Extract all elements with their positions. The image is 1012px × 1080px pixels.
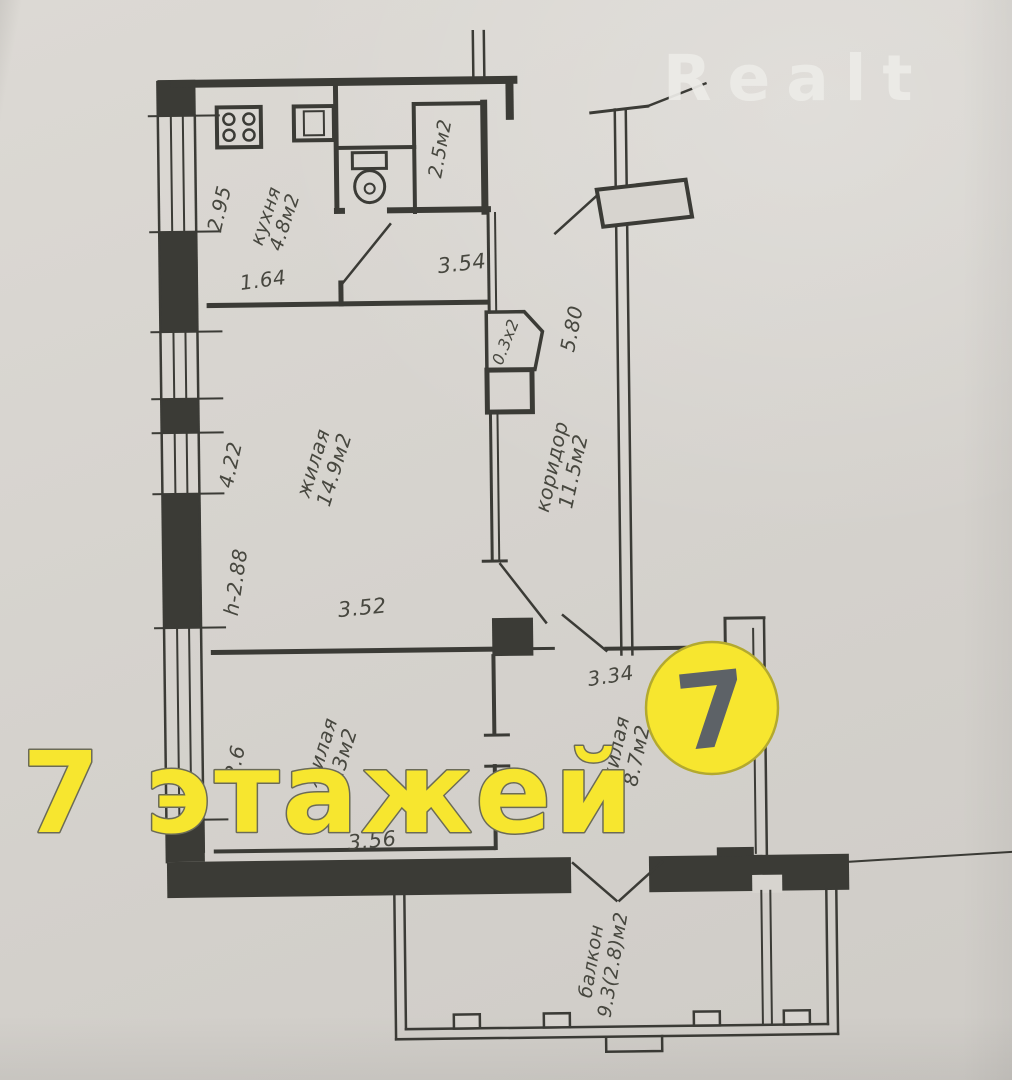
dim-kitchen-width: 2.95 (202, 183, 236, 234)
wall-living3-notch (725, 618, 764, 647)
balcony-divider (761, 891, 772, 1025)
kitchen-door-leaf (342, 224, 391, 283)
bathroom-area: 2.5м2 (424, 117, 456, 179)
balcony-right (826, 890, 838, 1034)
wall-living1-bottom (213, 649, 492, 652)
sink-icon (294, 106, 334, 140)
floors-watermark: 7 этажей (22, 729, 636, 859)
floors-watermark-text: 7 этажей (22, 729, 636, 859)
balcony-door-gap (752, 875, 782, 893)
balcony-center-step (606, 1036, 662, 1052)
dim-hall-width: 3.54 (436, 249, 487, 279)
wall-living1-top (209, 302, 486, 305)
living1-label: жилая 14.9м2 (290, 423, 356, 509)
scanned-floor-plan-photo: 2.95 кухня 4.8м2 2.5м2 1.64 3.54 5.80 0.… (0, 0, 1012, 1080)
living3-door-leaf (563, 615, 606, 652)
wall-wc-bottom (337, 209, 488, 211)
floor-plan-image: 2.95 кухня 4.8м2 2.5м2 1.64 3.54 5.80 0.… (0, 0, 1012, 1080)
living1-door-leaf (500, 563, 546, 623)
wall-corridor-left-a (488, 213, 489, 312)
wall-corridor-left-c (490, 412, 492, 560)
vent-lines (473, 31, 485, 78)
wall-corridor-left-b (495, 213, 496, 312)
dim-shaft: 0.3х2 (488, 316, 523, 367)
corridor-label: коридор 11.5м2 (530, 419, 595, 519)
dim-living1-width: 3.52 (337, 593, 388, 622)
walls (148, 25, 1012, 1057)
dim-living3-width: 3.34 (586, 660, 636, 691)
agency-logo: 7 (646, 642, 778, 775)
entry-door (597, 180, 693, 227)
toilet-icon (352, 152, 387, 202)
balcony-french-door-leaves (573, 862, 662, 901)
dim-living1-depth: 4.22 (214, 439, 247, 490)
stove-icon (217, 107, 261, 148)
shaft-box (487, 370, 533, 413)
wall-bath-right (484, 103, 485, 211)
balcony-label: балкон 9.3(2.8)м2 (572, 907, 633, 1019)
window-glazing-lines (171, 116, 192, 820)
brand-watermark: Realt (663, 42, 928, 115)
entry-door-leaf (555, 195, 598, 234)
dim-kitchen-door: 1.64 (238, 265, 287, 295)
wall-top (174, 80, 513, 84)
balcony-left (394, 895, 406, 1039)
logo-digit: 7 (670, 647, 755, 776)
wall-continuation-right (849, 852, 1012, 862)
kitchen-label: кухня 4.8м2 (246, 184, 305, 254)
dim-ceiling-height: h-2.88 (219, 547, 252, 617)
dim-entry-wall: 5.80 (555, 303, 588, 353)
wall-corridor-left-d (497, 412, 499, 560)
wall-wc-top (336, 147, 414, 148)
entry-wall-tick (591, 106, 648, 113)
